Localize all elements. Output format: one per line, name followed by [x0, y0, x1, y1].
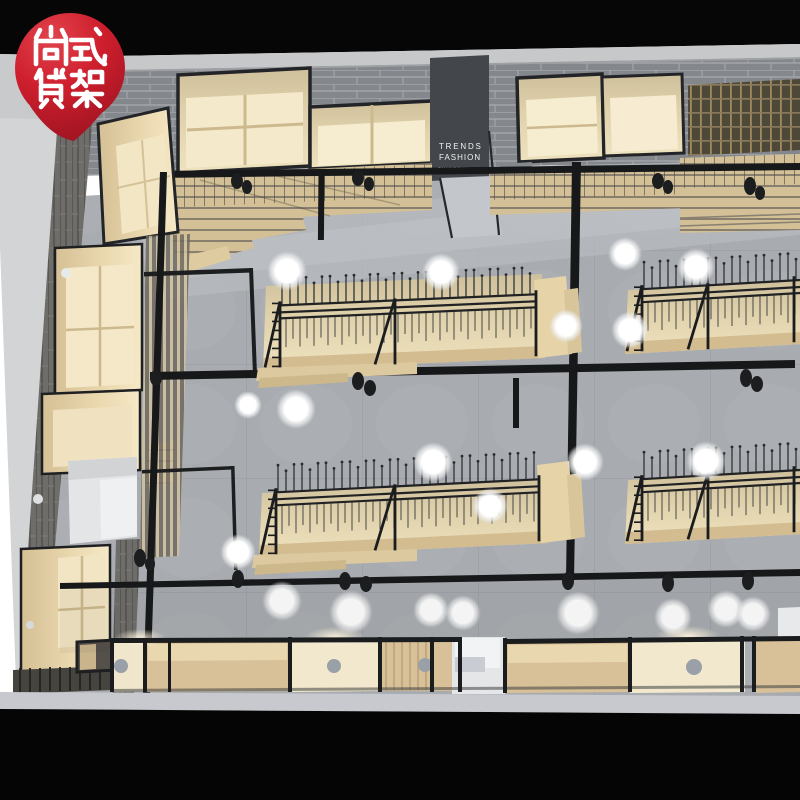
svg-text:FASHION: FASHION [439, 153, 481, 162]
svg-text:TRENDS: TRENDS [439, 142, 483, 151]
